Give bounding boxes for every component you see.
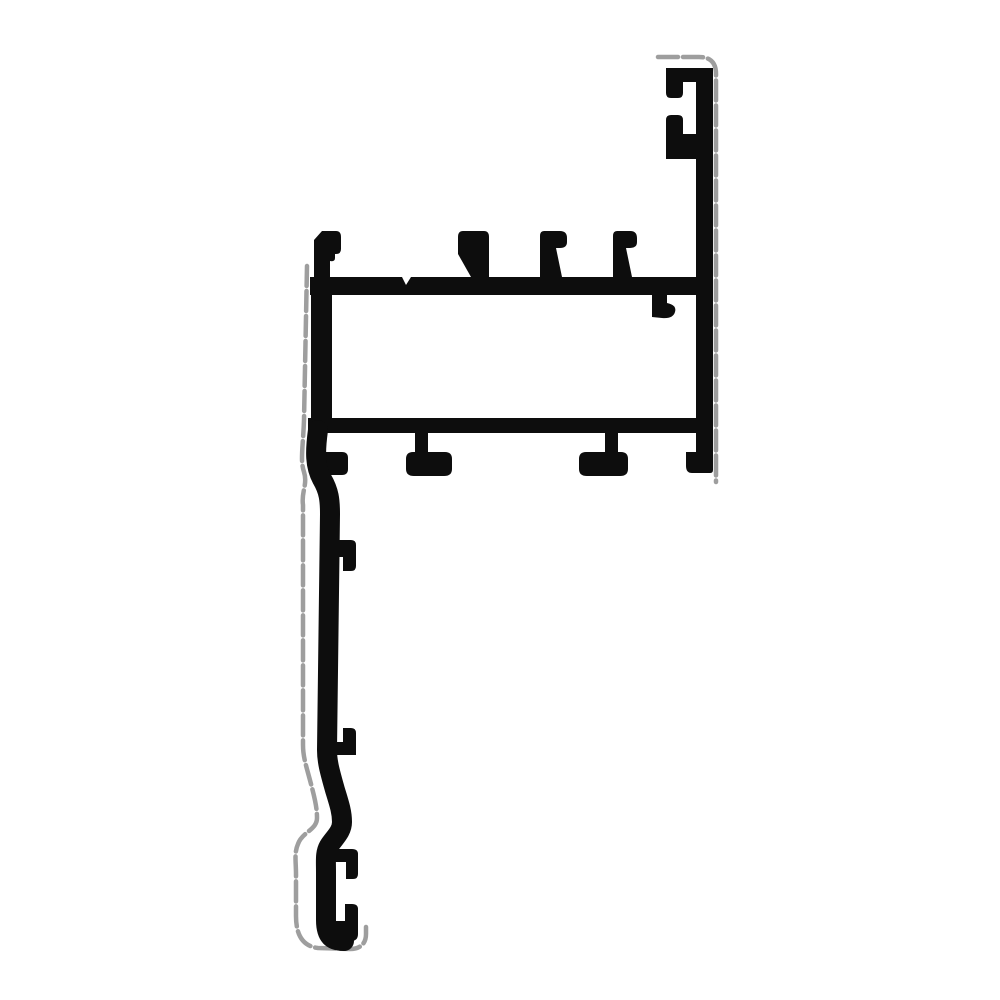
profile-top-tab-4 bbox=[613, 231, 637, 277]
profile-top-tab-3 bbox=[540, 231, 567, 277]
profile-foot-4 bbox=[686, 452, 713, 473]
profile-top-tab-1 bbox=[314, 231, 341, 277]
extrusion-profile-image bbox=[0, 0, 1000, 1000]
extrusion-profile-svg bbox=[0, 0, 1000, 1000]
profile-foot-2 bbox=[406, 433, 452, 476]
profile-foot-3 bbox=[579, 433, 628, 476]
profile-under-bar-hook bbox=[652, 295, 675, 318]
profile-top-hook-lower bbox=[666, 115, 696, 159]
profile-left-leg bbox=[316, 430, 344, 941]
profile-left-column bbox=[311, 277, 332, 433]
profile-top-bar bbox=[310, 277, 713, 295]
profile-top-tab-2 bbox=[458, 231, 489, 277]
profile-bottom-bar bbox=[308, 418, 710, 433]
profile-right-column bbox=[696, 68, 713, 473]
